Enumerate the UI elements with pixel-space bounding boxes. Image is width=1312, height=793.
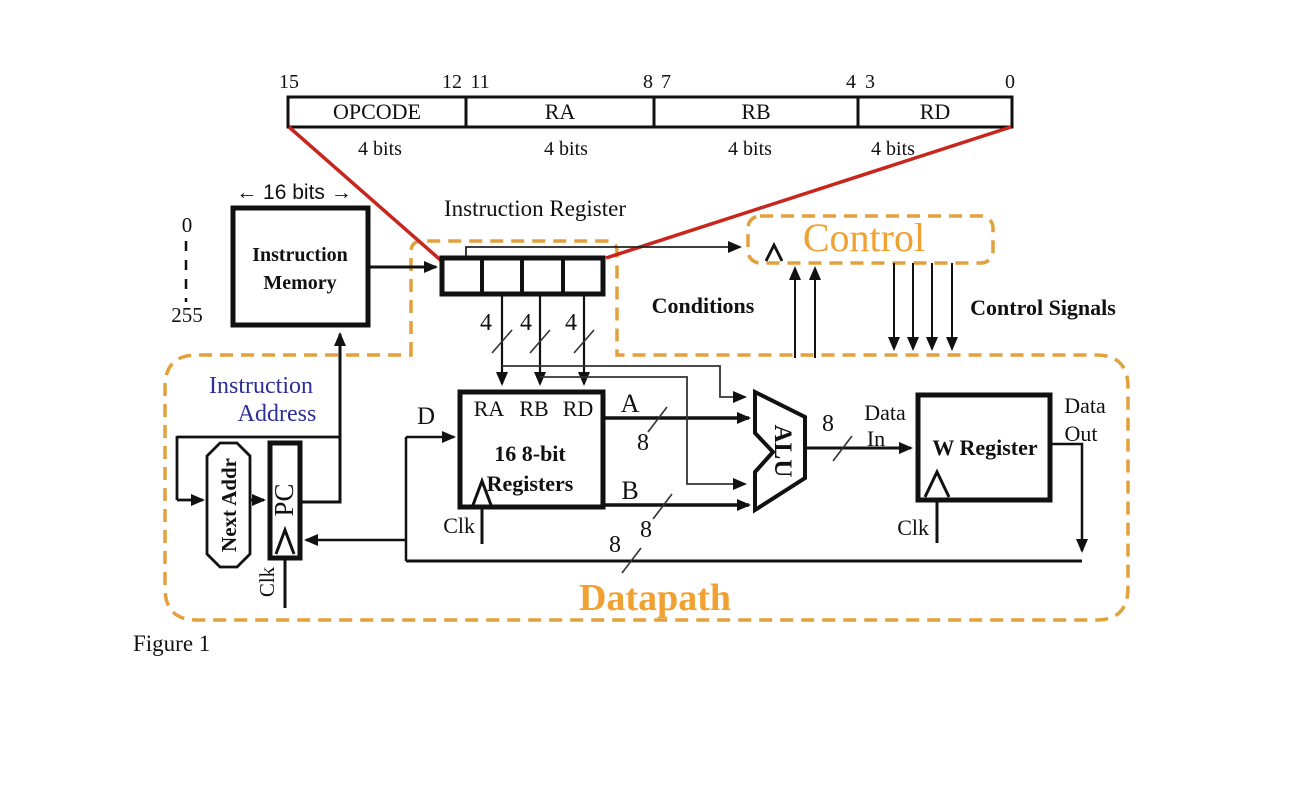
regfile-clk-label: Clk: [443, 513, 475, 538]
instruction-register-label: Instruction Register: [444, 196, 626, 221]
conditions-label: Conditions: [652, 293, 755, 318]
data-in-label-2: In: [867, 426, 885, 451]
wire-ir-to-control: [466, 247, 740, 256]
wreg-clk-label: Clk: [897, 515, 929, 540]
bit-label-12: 12: [442, 71, 462, 93]
field-ra: RA: [545, 99, 576, 124]
bit-label-7: 7: [661, 71, 671, 93]
clock-wedge-icon: [766, 245, 782, 261]
wire-data-out: [1050, 444, 1082, 551]
regfile-label-2: Registers: [487, 471, 574, 496]
cpu-architecture-figure: 15 12 11 8 7 4 3 0 OPCODE RA RB RD 4 bit…: [0, 0, 1312, 793]
bus-width-8: 8: [609, 532, 621, 558]
instruction-memory-label-1: Instruction: [252, 244, 348, 266]
data-out-label-2: Out: [1065, 421, 1098, 446]
bus-width-8: 8: [637, 430, 649, 456]
bit-label-0: 0: [1005, 71, 1015, 93]
regfile-label-1: 16 8-bit: [494, 441, 566, 466]
instruction-address-label-1: Instruction: [209, 373, 313, 399]
bus-width-4: 4: [565, 310, 577, 336]
field-rb: RB: [741, 99, 770, 124]
bit-label-8: 8: [643, 71, 653, 93]
field-size-rb: 4 bits: [728, 138, 772, 160]
bit-label-15: 15: [279, 71, 299, 93]
b-port-label: B: [621, 476, 638, 505]
addr-last-label: 255: [171, 303, 203, 327]
bus-width-8: 8: [822, 411, 834, 437]
pc-label: PC: [269, 483, 299, 516]
register-file-block: RA RB RD 16 8-bit Registers Clk D: [406, 392, 603, 561]
figure-caption: Figure 1: [133, 631, 210, 656]
bus-width-4: 4: [480, 310, 492, 336]
data-in-label-1: Data: [864, 400, 906, 425]
control-title: Control: [803, 215, 925, 260]
pc-clk-label: Clk: [255, 566, 279, 597]
d-port-label: D: [417, 403, 435, 430]
control-unit-block: Control Conditions Control Signals: [652, 215, 1117, 358]
bit-label-4: 4: [846, 71, 856, 93]
diagram-canvas: 15 12 11 8 7 4 3 0 OPCODE RA RB RD 4 bit…: [0, 0, 1312, 793]
control-signals-label: Control Signals: [970, 295, 1116, 320]
regfile-ra-port: RA: [474, 396, 505, 421]
bus-width-8: 8: [640, 517, 652, 543]
field-size-ra: 4 bits: [544, 138, 588, 160]
field-size-opcode: 4 bits: [358, 138, 402, 160]
bus-width-4: 4: [520, 310, 532, 336]
regfile-rb-port: RB: [519, 396, 548, 421]
next-addr-label: Next Addr: [217, 458, 241, 552]
bit-label-11: 11: [470, 71, 489, 93]
addr-first-label: 0: [182, 213, 193, 237]
field-rd: RD: [920, 99, 951, 124]
alu-label: ALU: [769, 425, 796, 478]
w-register-block: W Register Clk Data Out: [897, 393, 1106, 551]
bit-label-3: 3: [865, 71, 875, 93]
instruction-memory-block: ← 16 bits → Instruction Memory 0 255: [171, 181, 368, 327]
a-port-label: A: [621, 389, 640, 418]
regfile-rd-port: RD: [563, 396, 594, 421]
w-register-label: W Register: [932, 435, 1038, 460]
feedback-bus: 8: [406, 532, 1082, 573]
field-opcode: OPCODE: [333, 99, 421, 124]
memory-width-label: ← 16 bits →: [236, 181, 352, 204]
instruction-address-block: Instruction Address Next Addr PC Clk: [177, 334, 406, 608]
field-size-rd: 4 bits: [871, 138, 915, 160]
data-out-label-1: Data: [1064, 393, 1106, 418]
instruction-memory-box: [233, 208, 368, 325]
instruction-memory-label-2: Memory: [263, 272, 336, 294]
instruction-address-label-2: Address: [238, 401, 317, 427]
datapath-title: Datapath: [579, 577, 731, 619]
